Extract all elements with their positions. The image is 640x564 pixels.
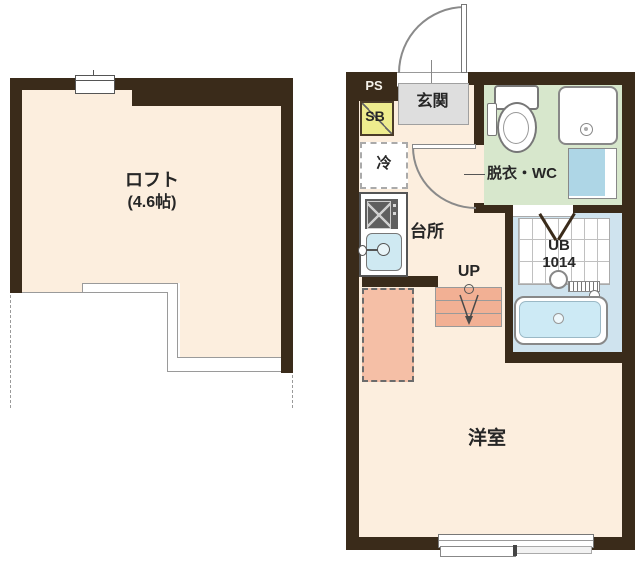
dressing-left-wall — [474, 85, 484, 145]
refrigerator-label: 冷 — [360, 155, 408, 172]
pipe-space-label: PS — [352, 79, 396, 94]
loft-floor-edge — [22, 292, 82, 293]
window-ledge-tick — [513, 545, 517, 556]
toilet-side-panel — [487, 103, 497, 136]
loft-top-wall-thick — [132, 78, 293, 106]
dressing-door-leaf — [412, 144, 476, 149]
loft-overhang-dashed — [362, 288, 414, 382]
entrance-label: 玄関 — [398, 93, 467, 111]
unit-bath-label: UB — [529, 237, 589, 254]
loft-window — [75, 75, 115, 94]
main-top-wall — [468, 72, 635, 85]
stove-burner — [367, 201, 391, 229]
loft-floor-edge — [177, 283, 178, 358]
stove-knob — [393, 204, 396, 207]
loft-floor-edge — [82, 283, 177, 284]
bath-drain — [549, 270, 568, 289]
floorplan-canvas: ロフト (4.6帖) 玄関 PS SB — [0, 0, 640, 564]
dressing-bottom-wall — [573, 205, 622, 213]
washing-machine-pan — [558, 86, 618, 145]
bathtub-drain — [553, 313, 564, 324]
loft-left-wall — [10, 90, 22, 293]
toilet-bowl-inner — [503, 112, 529, 144]
kitchen-label: 台所 — [405, 222, 449, 242]
loft-dashed-line-left — [10, 295, 11, 408]
window-ledge-right — [516, 546, 592, 554]
bath-door-threshold — [513, 205, 573, 217]
loft-right-wall — [281, 106, 293, 373]
loft-floor-edge — [167, 292, 168, 372]
faucet-base — [358, 245, 367, 256]
washbasin-bowl — [569, 149, 605, 196]
loft-window-pane-line — [76, 80, 114, 81]
stove-knob — [393, 212, 396, 215]
dressing-bottom-wall — [474, 205, 513, 213]
stairs-wall-stub — [362, 276, 438, 287]
loft-floor-edge — [177, 357, 281, 358]
main-right-wall — [622, 72, 635, 550]
loft-room-size-label: (4.6帖) — [92, 194, 212, 212]
bath-left-wall — [505, 213, 513, 363]
stairs-up-label: UP — [450, 263, 488, 281]
loft-dashed-line-right — [292, 375, 293, 408]
loft-window-center-tick — [93, 70, 94, 76]
entrance-door-leaf — [461, 4, 467, 73]
main-left-wall — [346, 85, 359, 550]
main-room-label: 洋室 — [451, 428, 523, 450]
window-ledge-left — [440, 546, 516, 557]
loft-floor — [180, 283, 281, 358]
shoe-box-label: SB — [358, 108, 392, 124]
bath-bottom-wall — [505, 352, 635, 363]
loft-floor-edge — [167, 371, 281, 372]
unit-bath-size-label: 1014 — [529, 254, 589, 271]
loft-floor-edge — [82, 292, 167, 293]
pan-drain-dot — [584, 127, 588, 131]
dressing-wc-label: 脱衣・WC — [478, 165, 566, 182]
main-window-pane-line — [439, 540, 593, 541]
stairs-down-arrow — [456, 292, 482, 328]
loft-room-label: ロフト — [92, 170, 212, 191]
faucet-head — [377, 243, 390, 256]
